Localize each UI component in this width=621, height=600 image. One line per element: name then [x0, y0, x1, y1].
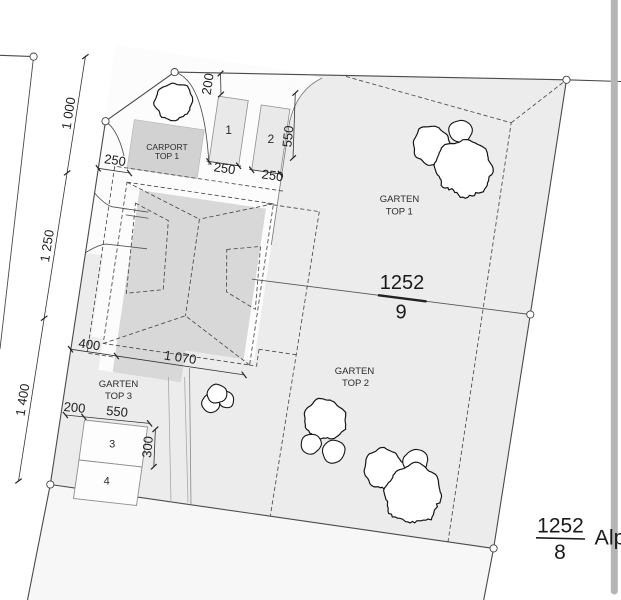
svg-text:8: 8: [554, 541, 566, 564]
svg-text:1252: 1252: [380, 272, 425, 294]
svg-text:300: 300: [139, 435, 156, 458]
svg-text:TOP 3: TOP 3: [105, 391, 132, 402]
svg-text:1: 1: [225, 123, 232, 137]
svg-text:400: 400: [78, 335, 102, 353]
svg-text:250: 250: [213, 159, 237, 177]
svg-text:200: 200: [63, 399, 86, 416]
svg-text:2: 2: [267, 132, 274, 146]
svg-text:200: 200: [199, 72, 217, 96]
svg-text:1252: 1252: [537, 515, 584, 538]
svg-text:Alp: Alp: [595, 526, 621, 550]
svg-text:GARTEN: GARTEN: [99, 379, 139, 390]
svg-text:250: 250: [261, 166, 285, 184]
svg-text:TOP 1: TOP 1: [386, 207, 413, 218]
svg-text:TOP 2: TOP 2: [342, 378, 369, 389]
svg-text:550: 550: [279, 125, 296, 148]
svg-text:250: 250: [103, 151, 127, 169]
svg-text:3: 3: [109, 438, 115, 450]
svg-text:9: 9: [395, 301, 406, 323]
svg-text:GARTEN: GARTEN: [335, 366, 375, 377]
svg-text:GARTEN: GARTEN: [380, 194, 420, 205]
svg-text:4: 4: [104, 475, 110, 487]
svg-text:TOP 1: TOP 1: [155, 151, 180, 161]
svg-text:550: 550: [106, 403, 129, 420]
